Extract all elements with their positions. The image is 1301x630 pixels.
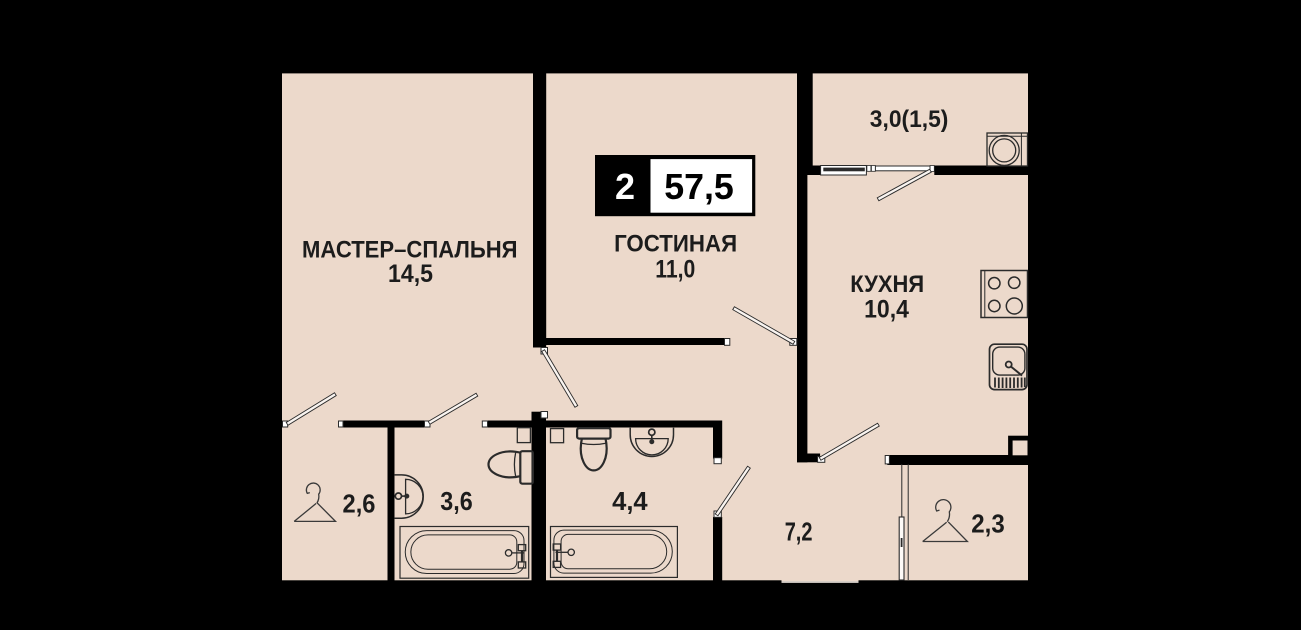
svg-text:14,5: 14,5 xyxy=(388,260,433,288)
svg-text:11,0: 11,0 xyxy=(655,256,695,284)
svg-text:КУХНЯ: КУХНЯ xyxy=(850,271,924,298)
svg-text:3,0(1,5): 3,0(1,5) xyxy=(870,106,949,133)
svg-text:7,2: 7,2 xyxy=(785,519,813,547)
svg-text:4,4: 4,4 xyxy=(612,488,648,516)
svg-text:2,3: 2,3 xyxy=(971,511,1005,539)
svg-text:57,5: 57,5 xyxy=(664,166,734,207)
svg-text:ГОСТИНАЯ: ГОСТИНАЯ xyxy=(614,231,737,258)
svg-text:10,4: 10,4 xyxy=(864,296,909,324)
svg-text:2,6: 2,6 xyxy=(343,491,376,519)
svg-text:3,6: 3,6 xyxy=(440,488,472,516)
svg-text:2: 2 xyxy=(615,166,635,207)
